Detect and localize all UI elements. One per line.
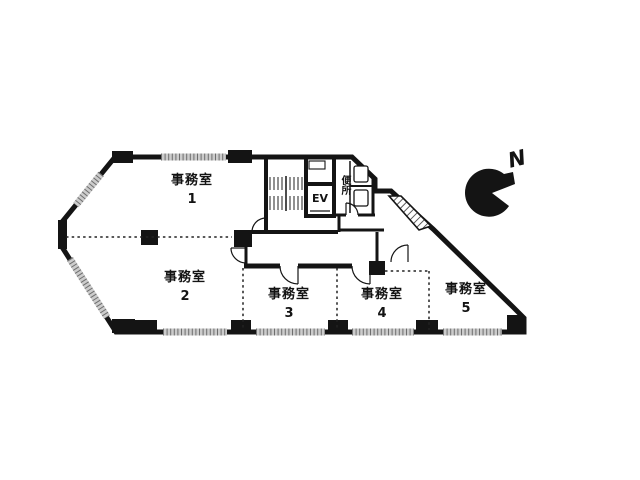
room-label-4: 事務室 4 — [337, 286, 427, 324]
toilet-label: 便所 — [337, 175, 350, 215]
room-number: 3 — [244, 305, 334, 324]
room-label-5: 事務室 5 — [421, 281, 511, 319]
room-name: 事務室 — [337, 286, 427, 305]
room-number: 5 — [421, 300, 511, 319]
room-name: 事務室 — [244, 286, 334, 305]
room-name: 事務室 — [140, 269, 230, 288]
room-name: 事務室 — [147, 172, 237, 191]
room-label-3: 事務室 3 — [244, 286, 334, 324]
room-number: 1 — [147, 191, 237, 210]
room-number: 2 — [140, 288, 230, 307]
room-name: 事務室 — [421, 281, 511, 300]
floor-plan: 事務室 1 事務室 2 事務室 3 事務室 4 事務室 5 EV 便所 N — [0, 0, 640, 480]
room-label-1: 事務室 1 — [147, 172, 237, 210]
room-number: 4 — [337, 305, 427, 324]
elevator-label: EV — [306, 191, 334, 207]
floor-plan-drawing — [0, 0, 640, 480]
room-label-2: 事務室 2 — [140, 269, 230, 307]
